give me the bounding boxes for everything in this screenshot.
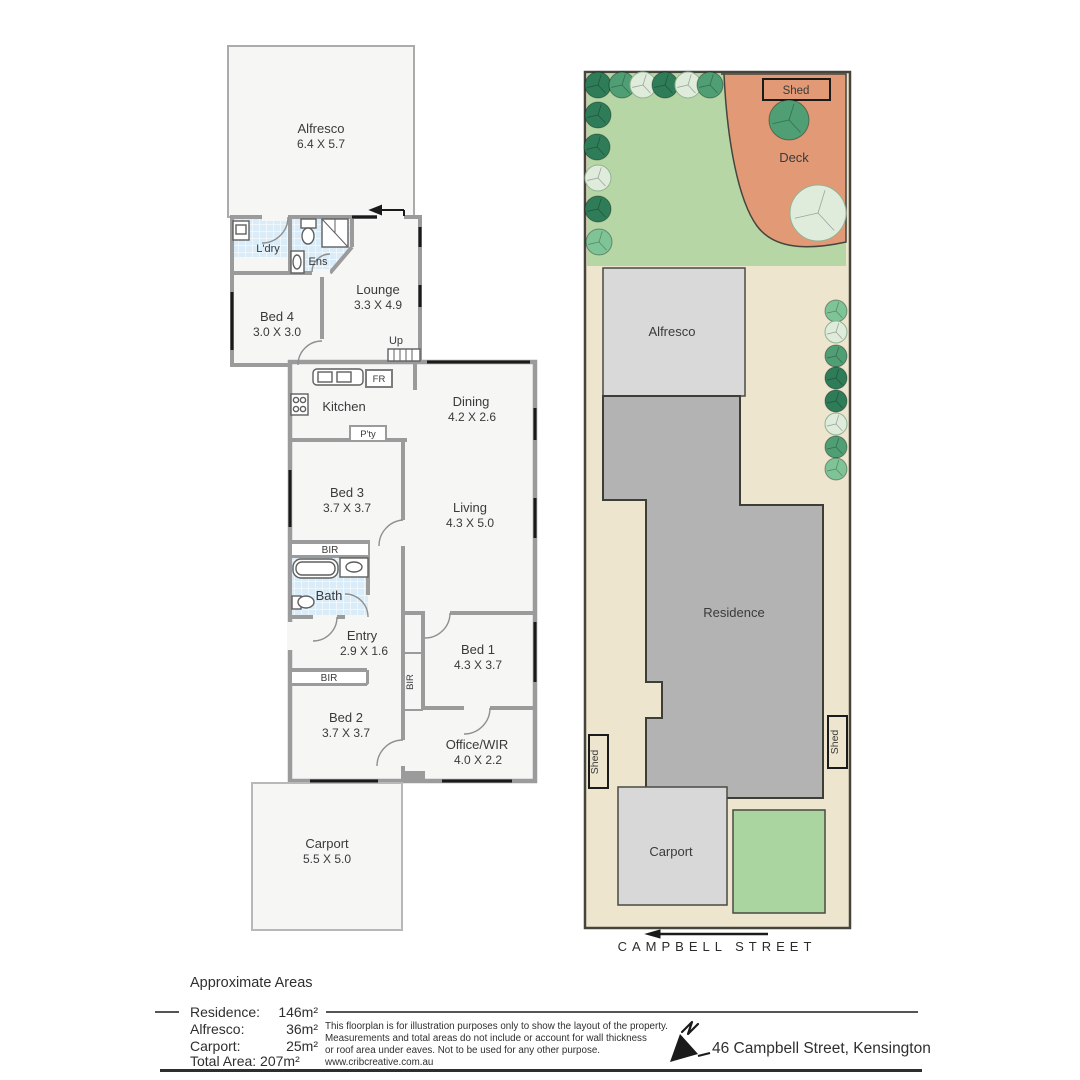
tree-icon [825, 321, 847, 343]
tree-icon [825, 367, 847, 389]
area-value: 25m² [286, 1038, 318, 1054]
wall-stub [403, 771, 425, 783]
tree-icon [585, 165, 611, 191]
deck-label: Deck [779, 150, 809, 165]
area-label: Residence: [190, 1004, 260, 1020]
shed-right-label: Shed [829, 730, 841, 755]
toilet-tank-icon [301, 219, 316, 228]
carport-label: Carport [305, 836, 349, 851]
tree-icon [584, 134, 610, 160]
tree-icon [825, 436, 847, 458]
total-area-row: Total Area: 207m² [190, 1053, 300, 1069]
leader-line [326, 1011, 918, 1013]
site-carport-label: Carport [649, 844, 693, 859]
street-arrow-icon [646, 930, 768, 938]
entry-dims: 2.9 X 1.6 [340, 644, 388, 658]
bath-toilet-bowl-icon [298, 596, 314, 608]
living-dims: 4.3 X 5.0 [446, 516, 494, 530]
site-plan: Shed Deck Alfresco Residence Shed Shed C… [584, 72, 850, 954]
fridge-label: FR [373, 374, 386, 385]
pantry-label: P'ty [360, 429, 376, 440]
bed3-dims: 3.7 X 3.7 [323, 501, 371, 515]
living-label: Living [453, 500, 487, 515]
bed4-label: Bed 4 [260, 309, 294, 324]
lounge-dims: 3.3 X 4.9 [354, 298, 402, 312]
stove-icon [291, 394, 308, 415]
shed-left-label: Shed [589, 750, 601, 775]
ensuite-label: Ens [309, 256, 328, 268]
toilet-bowl-icon [302, 228, 314, 244]
disclaimer-line: This floorplan is for illustration purpo… [325, 1021, 668, 1033]
tree-icon [585, 72, 611, 98]
tree-icon [825, 390, 847, 412]
total-area-value: 207m² [260, 1053, 300, 1069]
disclaimer-line: Measurements and total areas do not incl… [325, 1033, 668, 1045]
area-label: Alfresco: [190, 1021, 244, 1037]
tree-icon [825, 458, 847, 480]
carport-dims: 5.5 X 5.0 [303, 852, 351, 866]
tree-icon [790, 185, 846, 241]
tree-icon [697, 72, 723, 98]
lounge-label: Lounge [356, 282, 399, 297]
tree-icon [652, 72, 678, 98]
bed4-dims: 3.0 X 3.0 [253, 325, 301, 339]
total-area-label: Total Area: [190, 1053, 256, 1069]
tree-icon [769, 100, 809, 140]
stairs-icon [388, 349, 420, 361]
bed2-label: Bed 2 [329, 710, 363, 725]
area-label: Carport: [190, 1038, 241, 1054]
tree-icon [586, 229, 612, 255]
dining-dims: 4.2 X 2.6 [448, 410, 496, 424]
area-value: 36m² [286, 1021, 318, 1037]
disclaimer-text: This floorplan is for illustration purpo… [325, 1021, 668, 1069]
bir-hall-label: BIR [405, 674, 416, 690]
bath-label: Bath [316, 588, 343, 603]
shed-top-label: Shed [783, 85, 810, 97]
tree-icon [825, 345, 847, 367]
office-dims: 4.0 X 2.2 [454, 753, 502, 767]
office-label: Office/WIR [446, 737, 509, 752]
disclaimer-website: www.cribcreative.com.au [325, 1057, 668, 1069]
alfresco-dims: 6.4 X 5.7 [297, 137, 345, 151]
area-value: 146m² [278, 1004, 318, 1020]
footer-rule [160, 1069, 922, 1072]
tree-icon [825, 300, 847, 322]
tree-icon [825, 413, 847, 435]
washer-door-icon [236, 225, 246, 234]
front-lawn-patch [733, 810, 825, 913]
disclaimer-line: or roof area under eaves. Not to be used… [325, 1045, 668, 1057]
dining-label: Dining [453, 394, 490, 409]
bed1-label: Bed 1 [461, 642, 495, 657]
bir-bed3-label: BIR [322, 545, 339, 556]
laundry-label: L'dry [256, 243, 280, 255]
up-label: Up [389, 335, 403, 347]
site-alfresco-label: Alfresco [649, 324, 696, 339]
kitchen-label: Kitchen [322, 399, 365, 414]
floorplan-page: Alfresco 6.4 X 5.7 L'dry Ens Bed 4 3.0 X… [0, 0, 1080, 1080]
entry-label: Entry [347, 628, 378, 643]
bed3-label: Bed 3 [330, 485, 364, 500]
tree-icon [585, 196, 611, 222]
plan-drawing: Alfresco 6.4 X 5.7 L'dry Ens Bed 4 3.0 X… [0, 0, 1080, 1080]
floor-plan: Alfresco 6.4 X 5.7 L'dry Ens Bed 4 3.0 X… [228, 46, 535, 930]
alfresco-label: Alfresco [298, 121, 345, 136]
bed1-dims: 4.3 X 3.7 [454, 658, 502, 672]
bed2-dims: 3.7 X 3.7 [322, 726, 370, 740]
bir-bed2-label: BIR [321, 673, 338, 684]
tree-icon [585, 102, 611, 128]
site-residence-label: Residence [703, 605, 764, 620]
north-arrow-icon [670, 1022, 710, 1062]
property-address: 46 Campbell Street, Kensington [712, 1040, 931, 1058]
street-label: CAMPBELL STREET [618, 939, 817, 954]
leader-dash [155, 1011, 179, 1013]
legend-title: Approximate Areas [190, 975, 313, 991]
